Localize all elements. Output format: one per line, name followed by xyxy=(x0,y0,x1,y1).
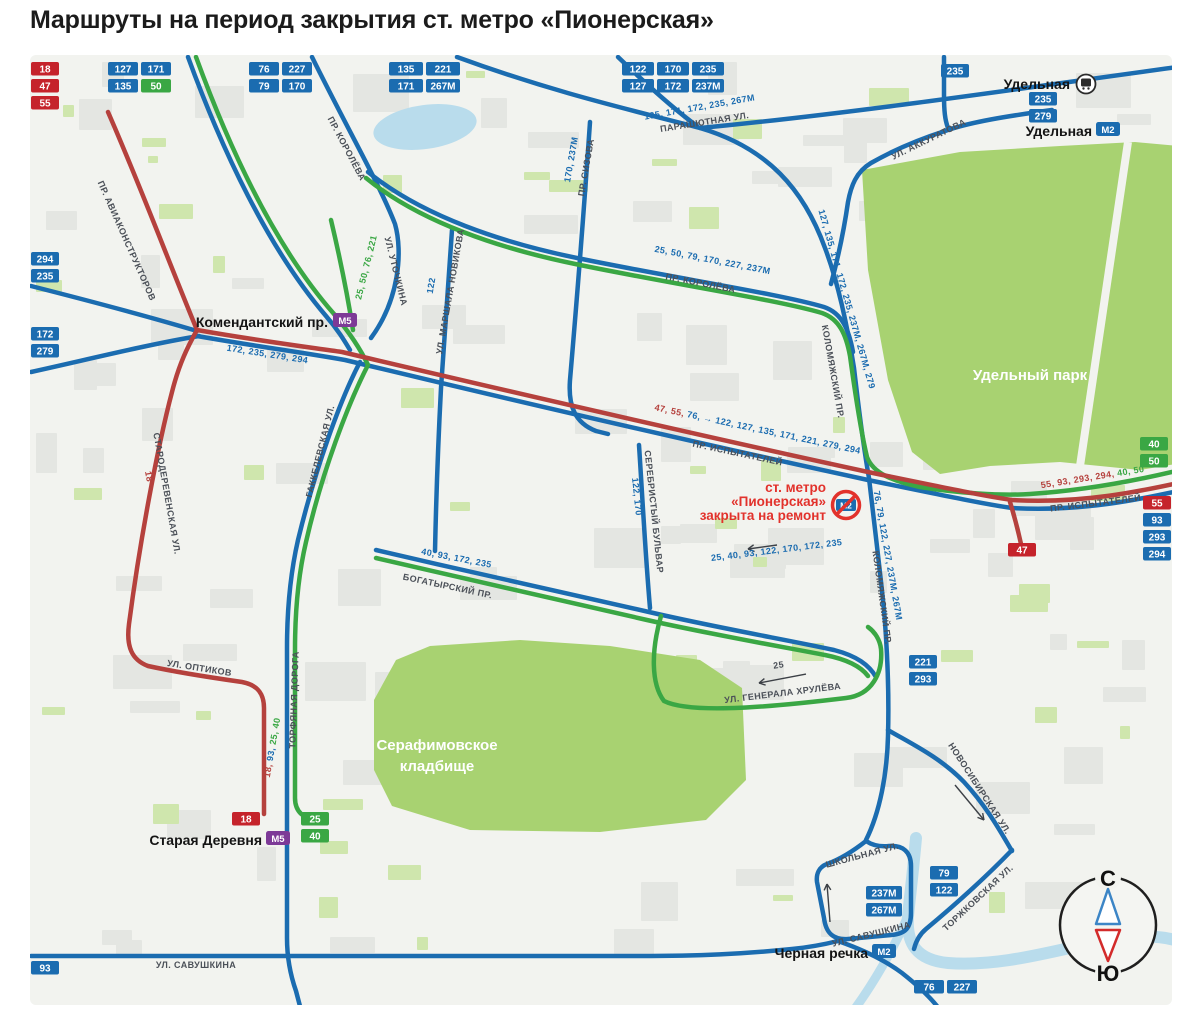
page-title: Маршруты на период закрытия ст. метро «П… xyxy=(30,6,714,35)
building-block xyxy=(1054,824,1095,835)
green-patch xyxy=(213,256,225,273)
green-patch xyxy=(142,138,166,147)
green-patch xyxy=(1019,584,1050,603)
route-badge-label: 47 xyxy=(1016,546,1028,557)
area-label: Серафимовское xyxy=(376,737,497,754)
street-label: СТАРОДЕРЕВЕНСКАЯ УЛ. xyxy=(151,432,182,555)
building-block xyxy=(90,363,116,386)
route-badge-label: 172 xyxy=(37,330,54,341)
green-patch xyxy=(74,488,102,500)
route-badge-label: 294 xyxy=(37,255,54,266)
street-label: ПР. СИЗОВА xyxy=(576,138,596,197)
route-badge-label: 135 xyxy=(398,65,415,76)
route-badge-label: 47 xyxy=(39,82,51,93)
building-block xyxy=(1122,640,1145,670)
railway-station-icon xyxy=(1077,75,1096,94)
route-badge-label: 267М xyxy=(430,82,455,93)
route-badge-label: 25 xyxy=(309,815,321,826)
green-patch xyxy=(244,465,264,480)
building-block xyxy=(1117,114,1151,125)
green-patch xyxy=(196,711,211,720)
green-patch xyxy=(388,865,421,880)
route-badge-label: 55 xyxy=(39,99,51,110)
route-badge-label: 279 xyxy=(1035,112,1052,123)
route-badge-label: 293 xyxy=(1149,533,1166,544)
route-badge-label: 279 xyxy=(37,347,54,358)
route-badge-label: 227 xyxy=(954,983,971,994)
green-patch xyxy=(1120,726,1130,739)
route-badge-label: 93 xyxy=(1151,516,1163,527)
direction-arrows xyxy=(748,545,984,922)
route-badge-label: 235 xyxy=(37,272,54,283)
route-badge-label: 171 xyxy=(148,65,165,76)
building-block xyxy=(633,201,672,222)
green-patch xyxy=(323,799,363,810)
street-label: 122 xyxy=(425,277,438,295)
route-badge-label: 135 xyxy=(115,82,132,93)
building-block xyxy=(481,98,507,128)
route-badge-label: 93 xyxy=(39,964,51,975)
building-block xyxy=(1064,747,1103,784)
green-patch xyxy=(690,466,706,474)
route-badge-label: 237М xyxy=(871,889,896,900)
building-block xyxy=(844,139,867,163)
route-badge-label: 50 xyxy=(150,82,162,93)
green-patch xyxy=(833,417,845,433)
closed-station-notice: ст. метро«Пионерская»закрыта на ремонт М… xyxy=(700,480,860,523)
route-badge-label: 171 xyxy=(398,82,415,93)
street-label: ПР. КОРОЛЁВА xyxy=(665,271,737,294)
route-badge-label: 40 xyxy=(309,832,321,843)
green-patch xyxy=(524,172,550,180)
route-line-west-leg-red xyxy=(128,330,264,814)
green-patch xyxy=(153,804,179,824)
green-patch xyxy=(941,650,973,662)
poster-page: Маршруты на период закрытия ст. метро «П… xyxy=(0,0,1200,1020)
building-block xyxy=(257,847,276,881)
green-patch xyxy=(989,892,1005,913)
metro-line-badge-label: М2 xyxy=(877,947,890,958)
station-label: Комендантский пр. xyxy=(196,314,328,330)
route-badge-label: 122 xyxy=(936,886,953,897)
green-patch xyxy=(417,937,428,950)
compass-south-label: Ю xyxy=(1097,961,1120,986)
closure-notice-line: ст. метро xyxy=(765,480,826,495)
route-line-west1-blue xyxy=(31,286,197,331)
building-block xyxy=(803,135,847,146)
metro-line-badge-label: М2 xyxy=(1101,125,1114,136)
building-block xyxy=(36,433,57,473)
street-label: УЛ. САВУШКИНА xyxy=(156,960,236,970)
building-block xyxy=(83,448,104,473)
closure-notice-line: «Пионерская» xyxy=(731,494,826,509)
building-block xyxy=(690,373,739,401)
station-label: Старая Деревня xyxy=(149,832,262,848)
green-patch xyxy=(466,71,485,78)
building-block xyxy=(870,442,903,467)
udelny-park-area xyxy=(862,142,1172,474)
building-block xyxy=(661,526,681,544)
route-badge-label: 267М xyxy=(871,906,896,917)
route-badge-label: 221 xyxy=(915,658,932,669)
street-label: УЛ. УТОЧКИНА xyxy=(383,236,410,307)
route-badge-label: 55 xyxy=(1151,499,1163,510)
route-badge-label: 18 xyxy=(39,65,51,76)
route-badge-label: 221 xyxy=(435,65,452,76)
building-block xyxy=(232,278,264,289)
closed-metro-icon: М2 xyxy=(833,492,860,519)
building-block xyxy=(594,528,646,568)
building-block xyxy=(930,539,970,553)
street-label: 25 xyxy=(773,659,785,670)
station-label: Удельная xyxy=(1026,123,1092,139)
route-badge-label: 170 xyxy=(289,82,306,93)
metro-line-badge-label: М5 xyxy=(338,316,352,327)
green-patch xyxy=(148,156,158,163)
green-patch xyxy=(63,105,74,117)
street-label: ТОРФЯНАЯ ДОРОГА xyxy=(287,651,300,749)
green-patch xyxy=(753,557,767,567)
building-block xyxy=(614,929,654,956)
street-label: 18 xyxy=(143,470,155,482)
route-map-svg: ПР. КОРОЛЁВАПАРАШЮТНАЯ УЛ.ПР. СИЗОВА170,… xyxy=(30,55,1172,1005)
route-badge-label: 127 xyxy=(630,82,647,93)
route-badge-label: 76 xyxy=(258,65,270,76)
map-canvas: ПР. КОРОЛЁВАПАРАШЮТНАЯ УЛ.ПР. СИЗОВА170,… xyxy=(30,55,1172,1005)
building-block xyxy=(46,211,77,230)
route-badge-label: 170 xyxy=(665,65,682,76)
building-block xyxy=(338,569,381,606)
route-badge-label: 293 xyxy=(915,675,932,686)
building-block xyxy=(116,576,162,591)
building-block xyxy=(680,524,717,543)
route-badge-label: 40 xyxy=(1148,440,1160,451)
building-block xyxy=(524,215,578,234)
building-block xyxy=(641,882,678,921)
building-block xyxy=(988,553,1013,577)
route-badge-label: 122 xyxy=(630,65,647,76)
route-line-savushkina-blue xyxy=(31,941,838,956)
building-block xyxy=(1050,634,1067,650)
green-patch xyxy=(773,895,793,901)
green-patch xyxy=(401,388,434,408)
route-badge-label: 79 xyxy=(258,82,270,93)
route-badge-label: 79 xyxy=(938,869,950,880)
route-badge-label: 50 xyxy=(1148,457,1160,468)
green-patch xyxy=(1035,707,1057,723)
area-label: Удельный парк xyxy=(973,367,1088,384)
closure-notice-line: закрыта на ремонт xyxy=(700,508,827,523)
building-block xyxy=(973,509,995,538)
route-badge-label: 235 xyxy=(1035,95,1052,106)
route-badge-label: 235 xyxy=(947,67,964,78)
route-line-topleft-green xyxy=(196,57,368,820)
building-block xyxy=(130,701,180,713)
green-patch xyxy=(159,204,193,219)
green-patch xyxy=(42,707,65,715)
compass-north-label: С xyxy=(1100,866,1116,891)
area-label: кладбище xyxy=(400,758,475,775)
building-block xyxy=(330,937,375,953)
green-patch xyxy=(320,841,348,854)
building-block xyxy=(113,655,172,689)
route-badge-label: 76 xyxy=(923,983,935,994)
building-block xyxy=(773,341,812,380)
building-block xyxy=(102,930,132,945)
building-block xyxy=(210,589,253,608)
green-patch xyxy=(319,897,338,918)
route-badge-label: 237М xyxy=(695,82,720,93)
green-patch xyxy=(1077,641,1109,648)
building-block xyxy=(1103,687,1146,702)
route-badge-label: 227 xyxy=(289,65,306,76)
station-label: Удельная xyxy=(1004,76,1070,92)
building-block xyxy=(637,313,662,341)
route-badge-label: 127 xyxy=(115,65,132,76)
green-patch xyxy=(689,207,719,229)
street-label: 25, 50, 76, 221 xyxy=(353,234,379,301)
building-block xyxy=(854,753,903,787)
route-badge-label: 18 xyxy=(240,815,252,826)
green-patch xyxy=(652,159,677,166)
building-block xyxy=(686,325,727,365)
route-badge-label: 294 xyxy=(1149,550,1166,561)
building-block xyxy=(203,647,233,661)
building-block xyxy=(305,662,366,701)
metro-line-badge-label: М5 xyxy=(271,834,285,845)
direction-arrow xyxy=(827,884,830,922)
building-block xyxy=(1070,517,1094,550)
street-label: ПР. АВИАКОНСТРУКТОРОВ xyxy=(96,179,158,302)
route-badge-label: 172 xyxy=(665,82,682,93)
green-patch xyxy=(450,502,470,511)
serafimovskoe-cemetery-area xyxy=(374,640,746,832)
building-block xyxy=(736,869,794,886)
route-badge-label: 235 xyxy=(700,65,717,76)
station-label: Черная речка xyxy=(775,945,869,961)
